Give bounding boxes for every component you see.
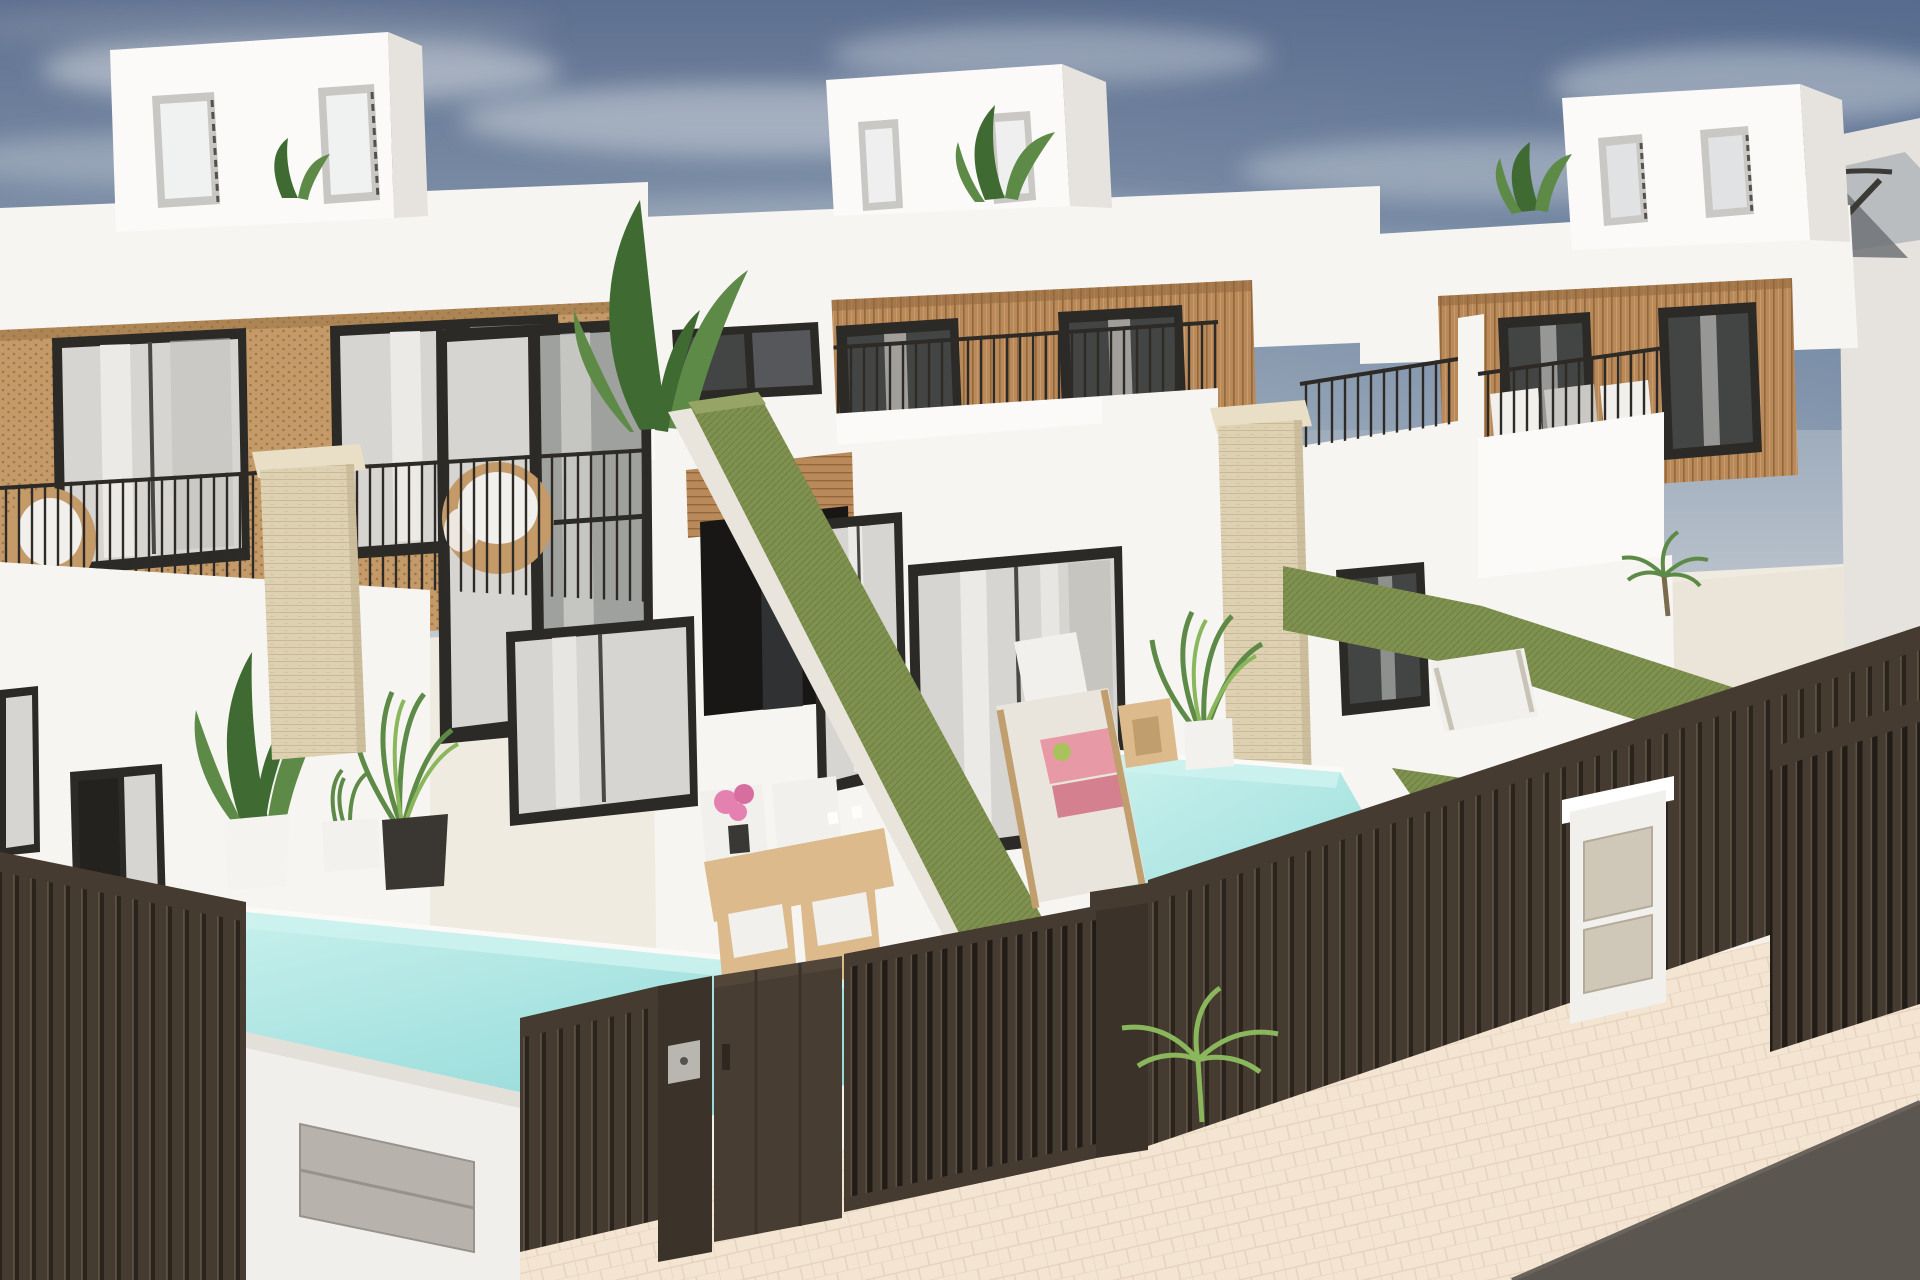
- roof-box-door: [318, 84, 380, 204]
- fence-far-right-gate: [1770, 700, 1920, 1052]
- villa-1-roof-box: [110, 32, 428, 232]
- white-pot: [224, 814, 290, 890]
- gate-end-post: [1090, 882, 1154, 1158]
- roof-box-door: [152, 92, 220, 208]
- villa-render: [0, 0, 1920, 1280]
- fence-short: [520, 996, 658, 1252]
- sliding-gate: [844, 906, 1096, 1212]
- pedestrian-gate: [714, 956, 842, 1242]
- mail-pillar: [1562, 776, 1674, 1024]
- dark-planter: [382, 814, 448, 890]
- roof-box-door: [858, 119, 903, 211]
- villa-1-ground-window: [0, 686, 40, 856]
- villa-3-window: [1658, 302, 1762, 460]
- roof-box-window: [1598, 134, 1648, 226]
- roof-box-window: [1700, 126, 1754, 218]
- gate-keypad-post: [658, 976, 712, 1262]
- fence-left-tall: [0, 852, 246, 1280]
- villa-1-ground-slider: [506, 616, 698, 826]
- side-table: [1118, 698, 1178, 768]
- render-canvas: [0, 0, 1920, 1280]
- villa-2-roof-box: [826, 64, 1112, 216]
